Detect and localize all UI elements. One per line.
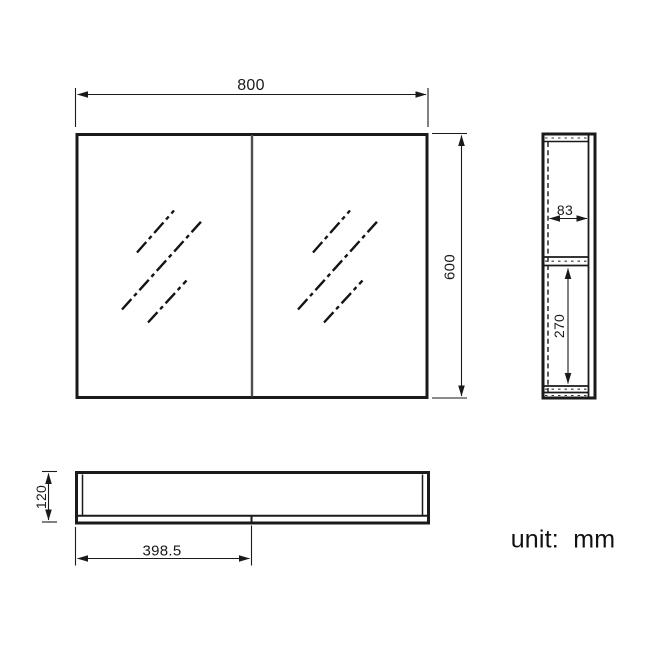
side-panel-hatch: [545, 138, 588, 396]
front-view: [77, 135, 427, 398]
side-shelf-depth-label: 83: [557, 203, 573, 217]
unit-note: unit: mm: [511, 526, 616, 555]
front-height-label: 600: [443, 254, 458, 280]
side-lower-height-label: 270: [552, 314, 566, 338]
right-door-mirror-hatch: [298, 211, 379, 323]
left-door-mirror-hatch: [122, 211, 203, 323]
bottom-door-width-label: 398.5: [142, 544, 181, 559]
bottom-view: [77, 473, 429, 524]
bottom-depth-label: 120: [34, 485, 48, 509]
side-view: [543, 134, 595, 398]
mirror-cabinet-dimension-drawing: 800 600 83 270 120 398.5 unit: mm: [0, 0, 650, 650]
front-width-label: 800: [237, 78, 265, 94]
